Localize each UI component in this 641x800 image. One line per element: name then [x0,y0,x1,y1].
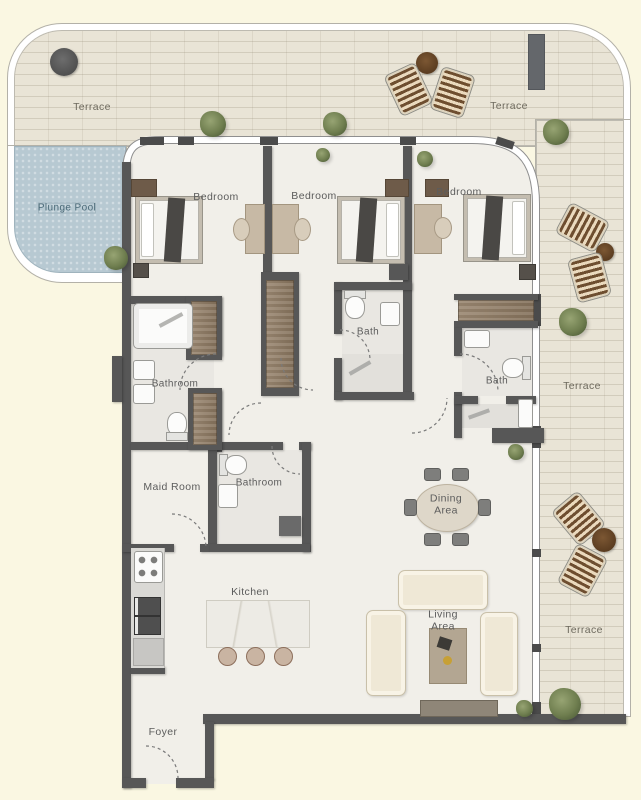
headboard-shelf [131,179,157,197]
plant [549,688,581,720]
room-label-dining-area: Dining Area [430,494,462,517]
room-label-bedroom: Bedroom [436,186,481,198]
pillow [512,201,525,255]
plant [508,444,524,460]
room-label-terrace: Terrace [565,624,603,636]
desk-chair [233,218,250,241]
wardrobe-master-lower [193,393,217,445]
shower-tray [518,399,533,428]
dining-chair [424,533,441,546]
room-label-bedroom: Bedroom [193,191,238,203]
terrace-table [592,528,616,552]
floor-plan: Terrace Terrace Terrace Terrace Plunge P… [0,0,641,800]
counter-bar [492,428,544,443]
stove [134,551,163,583]
bar-stool [274,647,293,666]
wall-bath-right-bottom [454,396,478,404]
wall-left-bump [112,356,122,402]
window-mullion [178,137,194,145]
living-area-line2: Area [428,621,458,633]
wardrobe-master-upper [191,301,217,355]
dining-chair [424,468,441,481]
toilet [345,296,365,319]
sink [133,360,155,380]
room-label-plunge-pool: Plunge Pool [38,203,96,214]
terrace-table [416,52,438,74]
dining-chair [452,533,469,546]
sink [380,302,400,326]
kitchen-cabinet [133,638,164,666]
window-mullion [140,137,164,145]
pillow [141,203,154,257]
plant [104,246,128,270]
plant [516,700,533,717]
room-label-kitchen: Kitchen [231,586,269,598]
bed [463,194,531,262]
room-label-foyer: Foyer [149,726,178,738]
plant [559,308,587,336]
wardrobe-frame-bed3 [454,321,538,328]
nightstand [519,264,536,280]
room-label-living-area: Living Area [428,610,458,633]
bed [135,196,203,264]
nightstand [133,263,149,278]
room-label-bath: Bath [486,376,508,387]
wardrobe-corridor [266,280,294,388]
plant [323,112,347,136]
wall-bath-middle-top [334,282,412,290]
wall-foyer-bottom [176,778,214,788]
wall-bathroom-maid-bottom [210,544,310,552]
bar-stool [246,647,265,666]
planter [528,34,545,90]
tv-console [420,700,498,717]
wall-maid-bottom [200,544,210,552]
room-label-bath: Bath [357,327,379,338]
window-mullion [532,549,541,557]
dining-chair [478,499,491,516]
window-mullion [260,137,278,145]
toilet [225,455,247,475]
pillow [386,203,399,257]
room-label-bathroom: Bathroom [152,379,199,390]
headboard-shelf [385,179,409,197]
coffee-table-decor [443,656,452,665]
sofa [366,610,406,696]
toilet-tank [166,432,188,441]
room-label-terrace: Terrace [73,101,111,113]
window-mullion [532,644,541,652]
wall-bath-right-left [454,328,462,356]
wall-shower-left [454,398,462,438]
wall-foyer-bottom [122,778,146,788]
kitchen-island [206,600,310,648]
room-label-terrace: Terrace [563,380,601,392]
oven [134,597,161,616]
dining-area-line2: Area [430,505,462,517]
sofa [398,570,488,610]
dining-area-line1: Dining [430,494,462,506]
room-label-bedroom: Bedroom [291,190,336,202]
washer [279,516,301,536]
room-label-terrace: Terrace [490,100,528,112]
dining-chair [404,499,417,516]
wall-maid-right [208,450,217,548]
foyer-floor [124,700,213,784]
sofa [480,612,518,696]
bed [337,196,405,264]
wardrobe-bed3 [458,300,534,321]
room-label-bathroom: Bathroom [236,478,283,489]
plant [543,119,569,145]
terrace-table [50,48,78,76]
sink [464,330,490,348]
desk-chair [294,218,311,241]
wall-foyer-right [205,722,214,780]
wall-bathroom-maid-top [225,442,283,450]
desk-chair [434,217,452,239]
living-area-line1: Living [428,610,458,622]
room-label-maid-room: Maid Room [143,481,200,493]
plant [316,148,330,162]
bar-stool [218,647,237,666]
dining-chair [452,468,469,481]
oven [134,616,161,635]
wall-bathroom-maid-right [302,442,311,552]
bed2-corner-unit [389,264,408,280]
plant [200,111,226,137]
plant [417,151,433,167]
wall-bath-middle-bottom [334,392,414,400]
window-mullion [400,137,416,145]
